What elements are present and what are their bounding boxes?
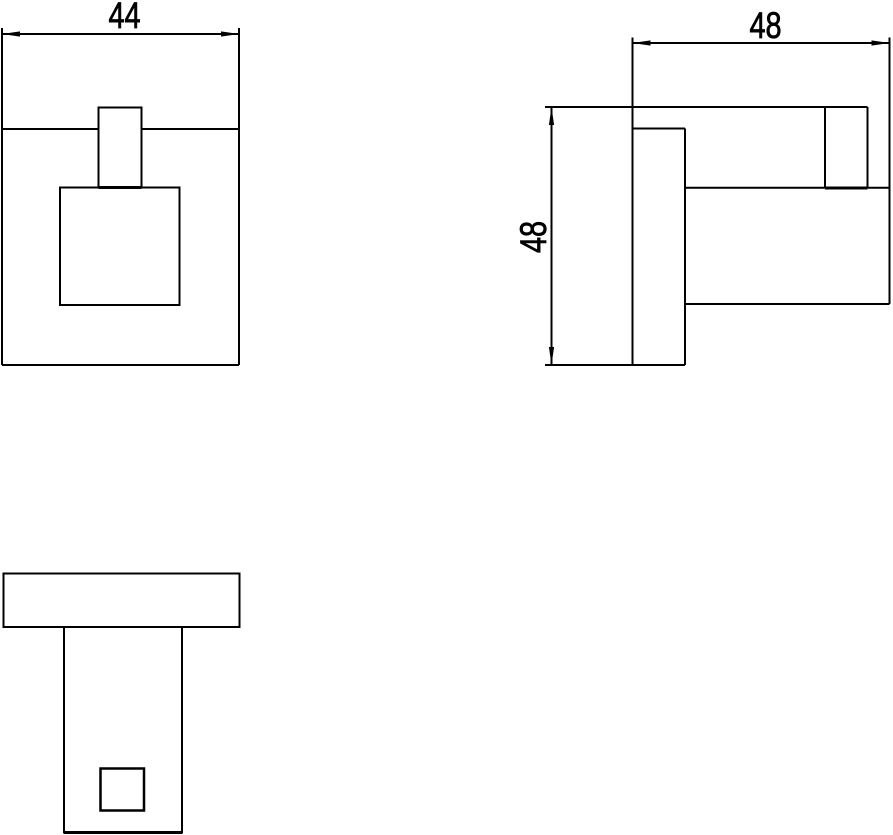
svg-text:48: 48 xyxy=(514,221,555,253)
svg-text:48: 48 xyxy=(749,5,781,46)
svg-text:44: 44 xyxy=(108,0,140,37)
